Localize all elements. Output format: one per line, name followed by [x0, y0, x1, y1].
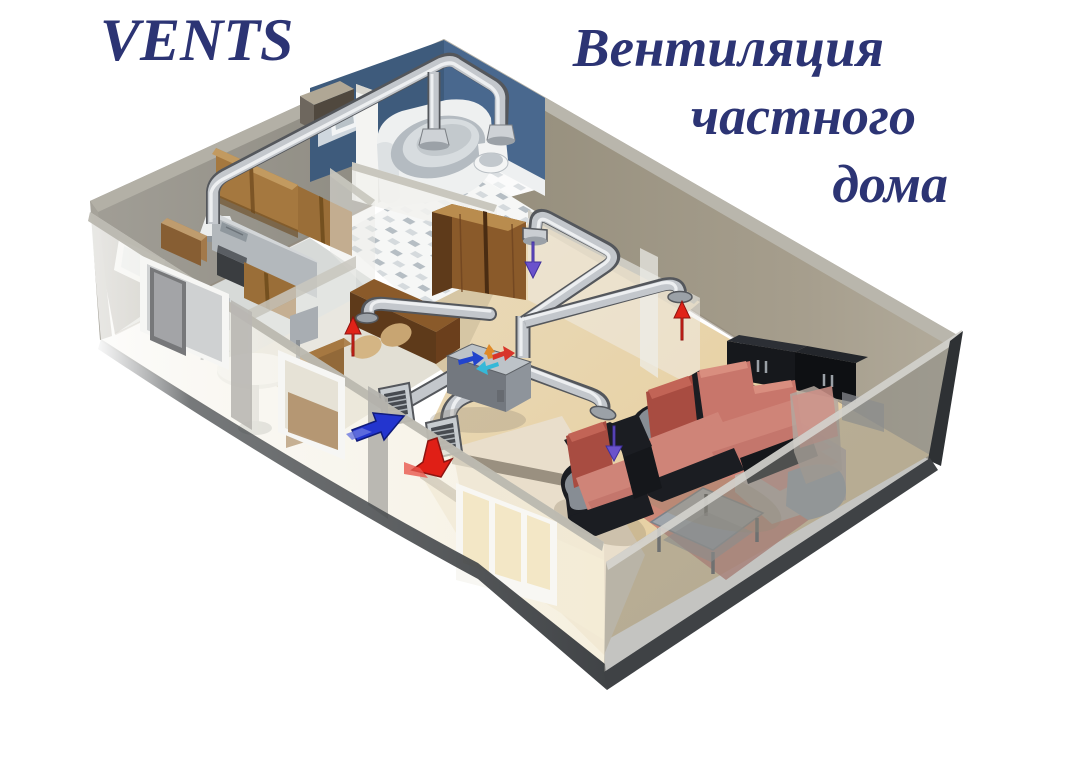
svg-text:Вентиляция: Вентиляция	[572, 17, 884, 78]
svg-text:дома: дома	[832, 154, 948, 214]
svg-text:VENTS: VENTS	[100, 7, 293, 73]
svg-text:частного: частного	[691, 86, 916, 146]
